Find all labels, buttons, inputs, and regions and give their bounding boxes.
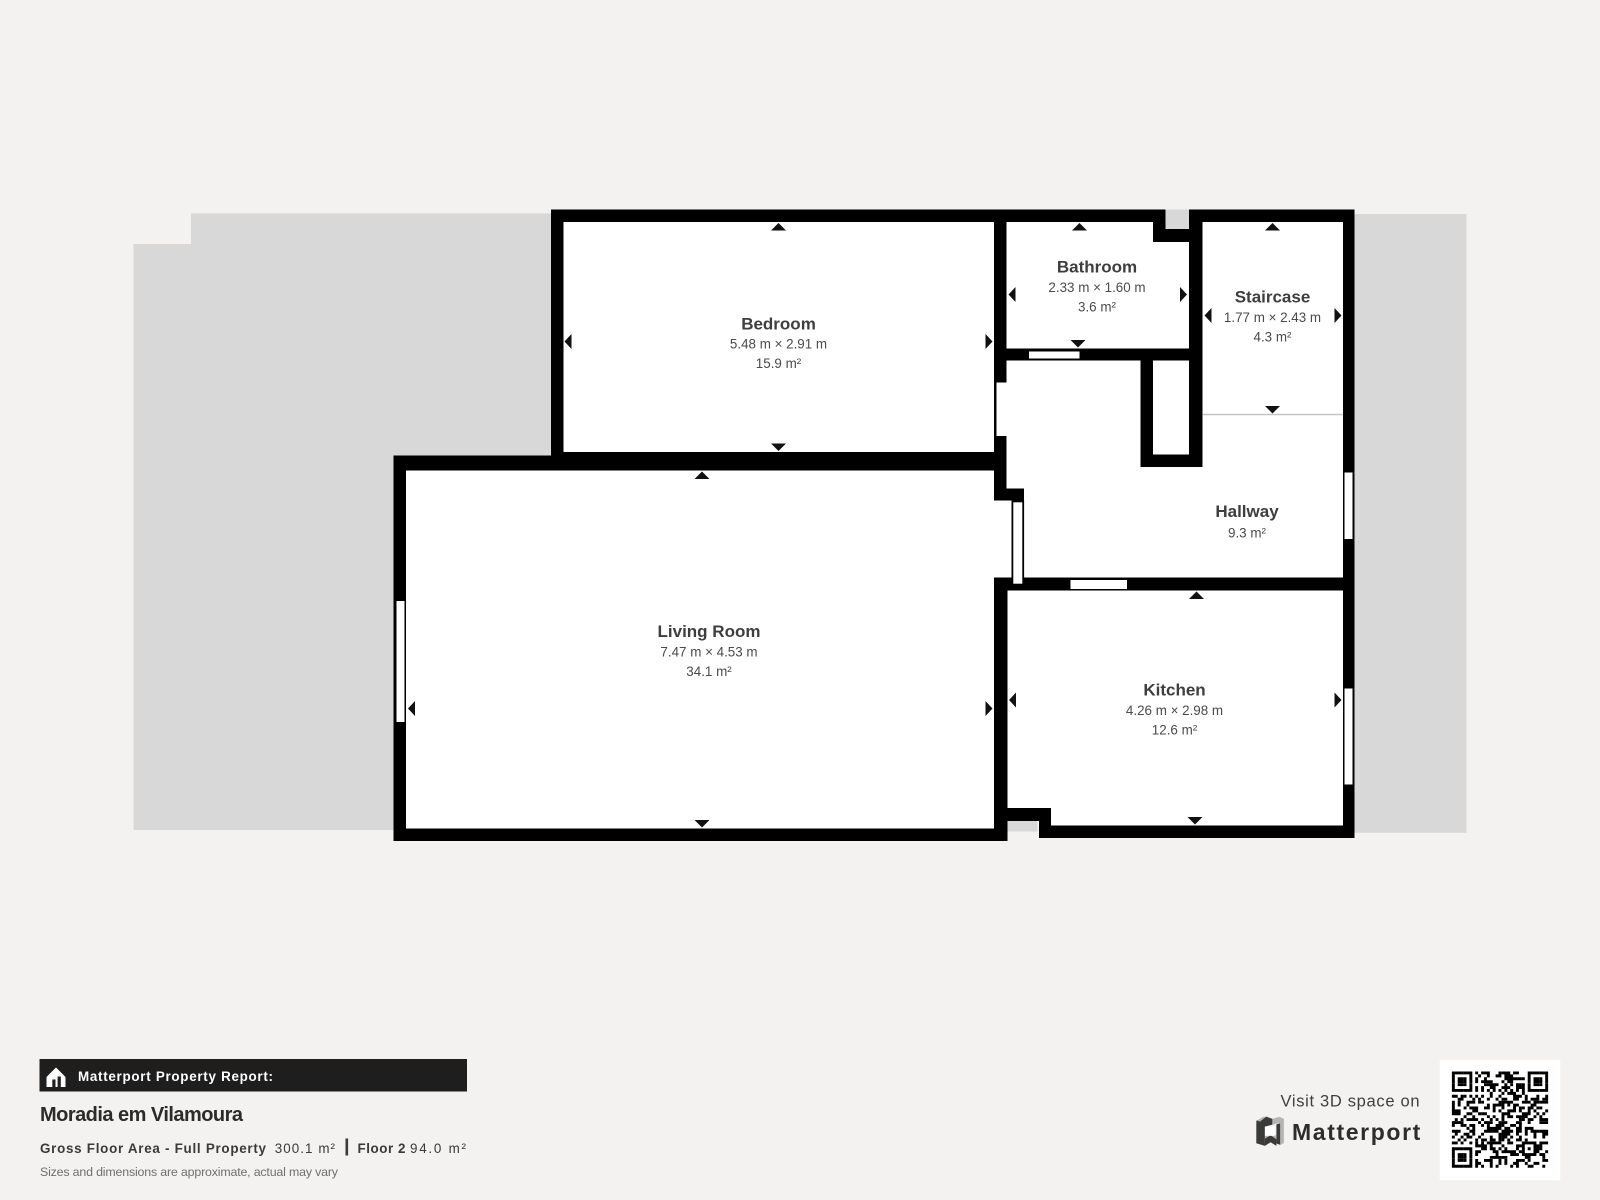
svg-text:34.1 m²: 34.1 m² — [686, 664, 732, 679]
svg-text:Matterport Property Report:: Matterport Property Report: — [78, 1069, 273, 1084]
svg-text:4.26 m × 2.98 m: 4.26 m × 2.98 m — [1126, 703, 1223, 718]
svg-text:Moradia em Vilamoura: Moradia em Vilamoura — [40, 1104, 244, 1126]
svg-text:2.33 m × 1.60 m: 2.33 m × 1.60 m — [1048, 280, 1145, 295]
svg-text:15.9 m²: 15.9 m² — [756, 356, 802, 371]
svg-text:12.6 m²: 12.6 m² — [1152, 723, 1198, 738]
svg-text:Living Room: Living Room — [658, 622, 761, 641]
svg-text:1.77 m × 2.43 m: 1.77 m × 2.43 m — [1224, 310, 1321, 325]
svg-text:Sizes and dimensions are appro: Sizes and dimensions are approximate, ac… — [40, 1165, 339, 1179]
svg-text:Hallway: Hallway — [1215, 502, 1279, 521]
svg-text:7.47 m × 4.53 m: 7.47 m × 4.53 m — [660, 645, 757, 660]
svg-text:4.3 m²: 4.3 m² — [1254, 330, 1292, 345]
svg-text:3.6 m²: 3.6 m² — [1078, 300, 1116, 315]
svg-text:Floor 294.0 m²: Floor 294.0 m² — [358, 1141, 467, 1156]
svg-text:5.48 m × 2.91 m: 5.48 m × 2.91 m — [730, 337, 827, 352]
svg-text:Kitchen: Kitchen — [1143, 681, 1205, 700]
svg-text:Bathroom: Bathroom — [1057, 258, 1137, 277]
svg-text:9.3 m²: 9.3 m² — [1228, 526, 1266, 541]
svg-text:Gross Floor Area - Full Proper: Gross Floor Area - Full Property 300.1 m… — [40, 1141, 336, 1156]
svg-text:Bedroom: Bedroom — [741, 315, 816, 334]
svg-text:Staircase: Staircase — [1235, 288, 1311, 307]
svg-text:Visit 3D space on: Visit 3D space on — [1281, 1093, 1420, 1111]
